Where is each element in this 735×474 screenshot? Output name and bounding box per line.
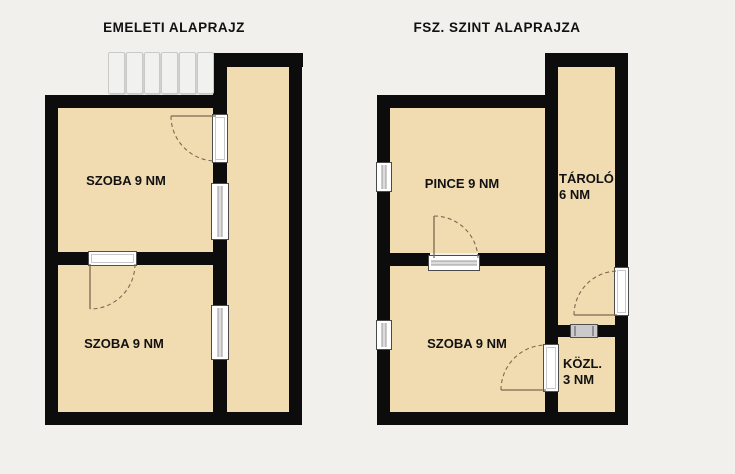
window-icon: [211, 183, 229, 240]
room-label-kozl-line2: 3 NM: [563, 372, 623, 388]
window-icon: [211, 305, 229, 360]
stair-tread: [197, 52, 214, 94]
wall: [377, 95, 390, 425]
wall: [213, 53, 227, 115]
wall: [213, 163, 227, 183]
room-label-pince: PINCE 9 NM: [384, 176, 540, 192]
floor-plan-canvas: EMELETI ALAPRAJZ: [0, 0, 735, 474]
wall: [377, 95, 558, 108]
wall: [135, 252, 227, 265]
door-threshold-icon: [428, 255, 480, 271]
plan-title-fsz: FSZ. SZINT ALAPRAJZA: [372, 20, 622, 35]
wall: [45, 412, 302, 425]
door-leaf-icon: [543, 344, 559, 392]
wall: [377, 412, 628, 425]
wall: [558, 325, 570, 337]
wall: [213, 240, 227, 305]
wall: [598, 325, 615, 337]
plan-title-emeleti: EMELETI ALAPRAJZ: [44, 20, 304, 35]
wall: [45, 95, 227, 108]
room-label-tarolo: TÁROLÓ 6 NM: [559, 171, 629, 203]
stair-tread: [179, 52, 196, 94]
stair-tread: [108, 52, 125, 94]
stair-tread: [144, 52, 161, 94]
vent-window-icon: [570, 324, 598, 338]
room-corridor: [227, 67, 289, 412]
wall: [289, 53, 302, 425]
room-label-szoba-upper: SZOBA 9 NM: [48, 173, 204, 189]
room-label-kozl-line1: KÖZL.: [563, 356, 623, 372]
wall: [615, 53, 628, 268]
door-leaf-icon: [212, 114, 228, 163]
wall: [545, 53, 558, 345]
door-leaf-icon: [614, 267, 629, 316]
room-label-szoba-lower: SZOBA 9 NM: [46, 336, 202, 352]
room-label-kozl: KÖZL. 3 NM: [563, 356, 623, 388]
room-label-szoba-ground: SZOBA 9 NM: [389, 336, 545, 352]
wall: [390, 253, 430, 266]
stair-tread: [126, 52, 143, 94]
staircase: [108, 52, 214, 94]
wall: [213, 360, 227, 412]
stair-tread: [161, 52, 178, 94]
wall: [478, 253, 545, 266]
wall: [545, 391, 558, 412]
room-label-tarolo-line2: 6 NM: [559, 187, 629, 203]
door-leaf-icon: [88, 251, 137, 266]
room-label-tarolo-line1: TÁROLÓ: [559, 171, 629, 187]
wall: [45, 252, 90, 265]
